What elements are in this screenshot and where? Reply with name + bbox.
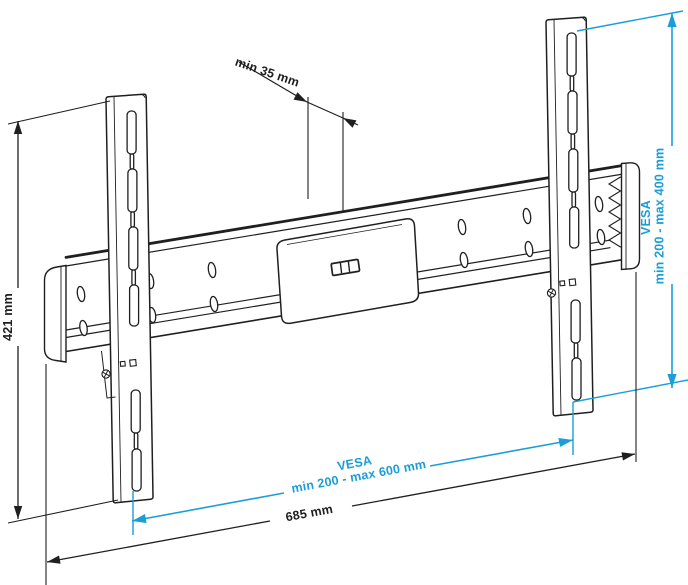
dimension-label-height: 421 mm bbox=[1, 293, 15, 341]
wall-mount-diagram: 421 mm min 35 mm VESA min 200 - max 400 … bbox=[0, 0, 688, 585]
vesa-range: min 200 - max 400 mm bbox=[653, 148, 667, 285]
center-cover-plate bbox=[277, 219, 419, 324]
arrow-right-icon bbox=[558, 435, 573, 447]
left-vesa-strip bbox=[100, 94, 153, 503]
vesa-title: VESA bbox=[639, 200, 653, 235]
rail-right-end-cap bbox=[622, 163, 640, 270]
dimension-label-vesa-vertical: VESA min 200 - max 400 mm bbox=[639, 148, 667, 285]
dimension-top-clearance: min 35 mm bbox=[233, 55, 358, 211]
arrow-up-icon bbox=[667, 13, 676, 27]
arrow-down-icon bbox=[667, 374, 676, 388]
arrow-right-icon bbox=[294, 92, 309, 106]
right-vesa-strip bbox=[546, 17, 593, 416]
arrow-left-icon bbox=[46, 556, 60, 567]
rail-serrated-teeth bbox=[609, 177, 621, 247]
left-strip-screw bbox=[100, 368, 111, 379]
rail-left-end-cap bbox=[45, 266, 67, 363]
technical-drawing-canvas: 421 mm min 35 mm VESA min 200 - max 400 … bbox=[0, 0, 688, 585]
dimension-label-width: 685 mm bbox=[285, 502, 335, 524]
arrow-down-icon bbox=[14, 506, 22, 519]
dimension-label-vesa-horizontal: VESA min 200 - max 600 mm bbox=[288, 444, 427, 496]
arrow-right-icon bbox=[621, 450, 635, 461]
dimension-vesa-horizontal: VESA min 200 - max 600 mm bbox=[131, 402, 574, 535]
dimension-label-top-clearance: min 35 mm bbox=[233, 55, 301, 90]
